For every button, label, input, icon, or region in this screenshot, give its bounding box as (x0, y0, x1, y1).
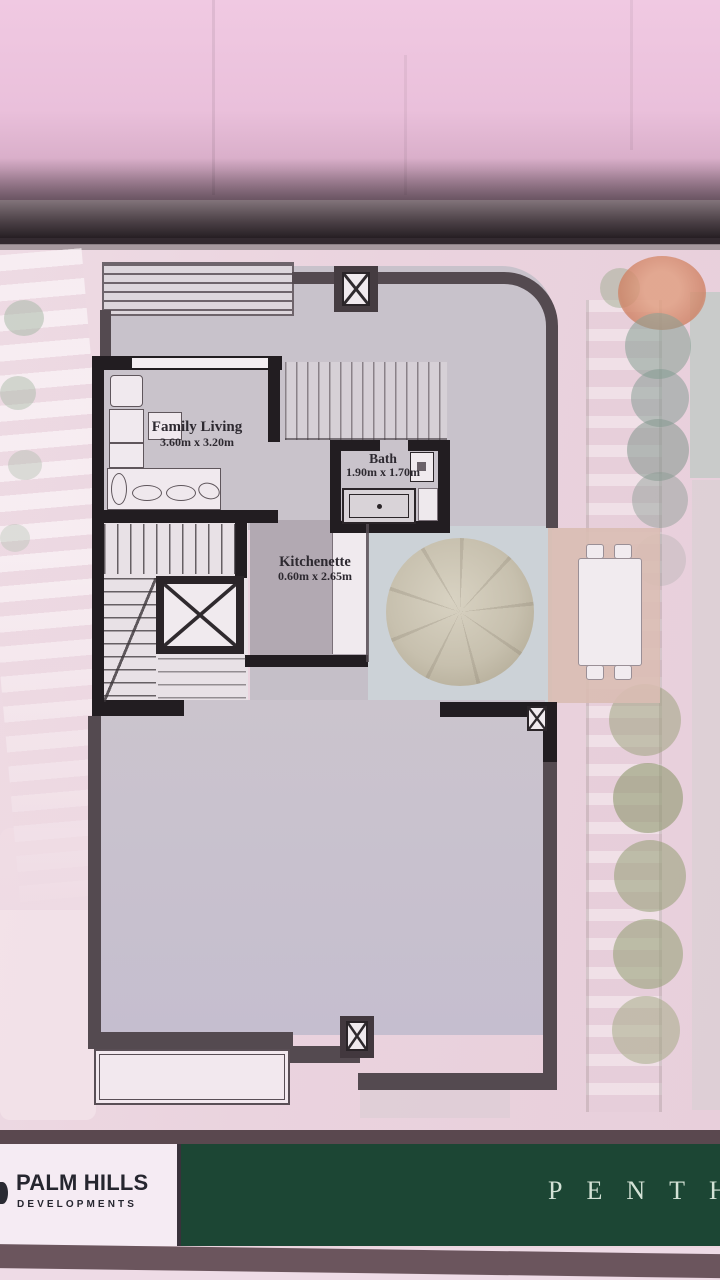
tree-icon (612, 996, 680, 1064)
column-x-glyph (348, 1023, 366, 1049)
room-dims: 1.90m x 1.70m (316, 466, 450, 479)
room-label-kitchenette: Kitchenette 0.60m x 2.65m (245, 554, 385, 584)
tree-icon (613, 919, 683, 989)
stair-direction-line (104, 578, 156, 702)
kitchenette-patio-partition (366, 522, 369, 662)
stair-flight-upper (104, 524, 246, 574)
pergola-slats-hatch (285, 362, 447, 440)
pergola-hatch (102, 262, 294, 316)
elevator-x-glyph (164, 584, 236, 646)
room-label-bath: Bath 1.90m x 1.70m (316, 451, 450, 480)
page-crease-line (630, 0, 633, 150)
room-name: Family Living (128, 419, 266, 436)
footer-logo-panel: PALM HILLS DEVELOPMENTS (0, 1144, 177, 1246)
bush-icon (0, 376, 36, 410)
shower-drain (377, 504, 382, 509)
dining-chair (614, 665, 632, 680)
bush-icon (4, 300, 44, 336)
patio-tree-icon (386, 538, 534, 686)
lower-terrace-floor (100, 700, 545, 1035)
photographed-floor-plan-page: Family Living 3.60m x 3.20m Bath 1.90m x… (0, 0, 720, 1280)
room-dims: 0.60m x 2.65m (245, 570, 385, 583)
landscape-teal-strip (692, 480, 720, 1110)
stair-flight-lower (158, 658, 246, 702)
planter-box-inner (99, 1054, 285, 1100)
bath-vanity (418, 488, 438, 521)
path-below-wall (360, 1090, 510, 1118)
dining-table (578, 558, 642, 666)
terrace-wall-top (292, 272, 492, 284)
brand-tagline: DEVELOPMENTS (17, 1199, 177, 1210)
room-divider-wall (268, 370, 280, 442)
column-marker-icon (527, 706, 547, 731)
page-fold-shadow (0, 158, 720, 240)
stair-core-wall-bottom (92, 700, 184, 716)
brand-name: PALM HILLS (16, 1170, 176, 1196)
room-label-family-living: Family Living 3.60m x 3.20m (128, 419, 266, 449)
footer-title-banner: PENTH (181, 1144, 720, 1246)
terrace-wall-right-lower (543, 716, 557, 1090)
bush-icon (8, 450, 42, 480)
sofa-cushion (196, 480, 222, 502)
tree-icon (614, 840, 686, 912)
sofa-cushion (166, 485, 196, 501)
column-x-glyph (344, 274, 368, 304)
window (132, 356, 268, 370)
room-name: Kitchenette (245, 554, 385, 570)
tree-icon (613, 763, 683, 833)
bush-icon (0, 524, 30, 552)
elevator-icon (156, 576, 244, 654)
dining-chair (586, 544, 604, 559)
room-dims: 3.60m x 3.20m (128, 436, 266, 449)
room-name: Bath (316, 451, 450, 466)
terrace-wall-right-upper (546, 356, 558, 528)
shower-tray (342, 488, 416, 524)
terrace-wall-bottom-right (358, 1073, 557, 1090)
terrace-wall-bottom-left (88, 1032, 293, 1049)
planter-box (94, 1049, 290, 1105)
plan-title: PENTH (548, 1176, 720, 1206)
column-x-glyph (529, 708, 545, 729)
sofa-cushion (132, 485, 162, 501)
kitchenette-counter (332, 524, 366, 654)
dining-chair (586, 665, 604, 680)
terrace-wall-left-lower (88, 716, 101, 1046)
terrace-wall-left-upper (100, 310, 111, 362)
kitchenette-bottom-wall (245, 655, 368, 667)
family-living-bottom-wall (92, 510, 278, 523)
sofa (107, 468, 221, 510)
palm-logo-icon (0, 1182, 8, 1204)
unit-wall-left (92, 356, 104, 524)
footer-top-border (0, 1130, 720, 1144)
column-marker-icon (346, 1021, 368, 1051)
tree-icon (632, 472, 688, 528)
unit-wall-top-right (268, 356, 282, 370)
stair-core-wall-left (92, 524, 104, 716)
sofa-armrest (111, 473, 127, 505)
plant-pot (110, 375, 143, 407)
column-marker-icon (342, 272, 370, 306)
patio-tree-texture (386, 538, 534, 686)
landscape-teal-strip (690, 292, 720, 478)
dining-chair (614, 544, 632, 559)
